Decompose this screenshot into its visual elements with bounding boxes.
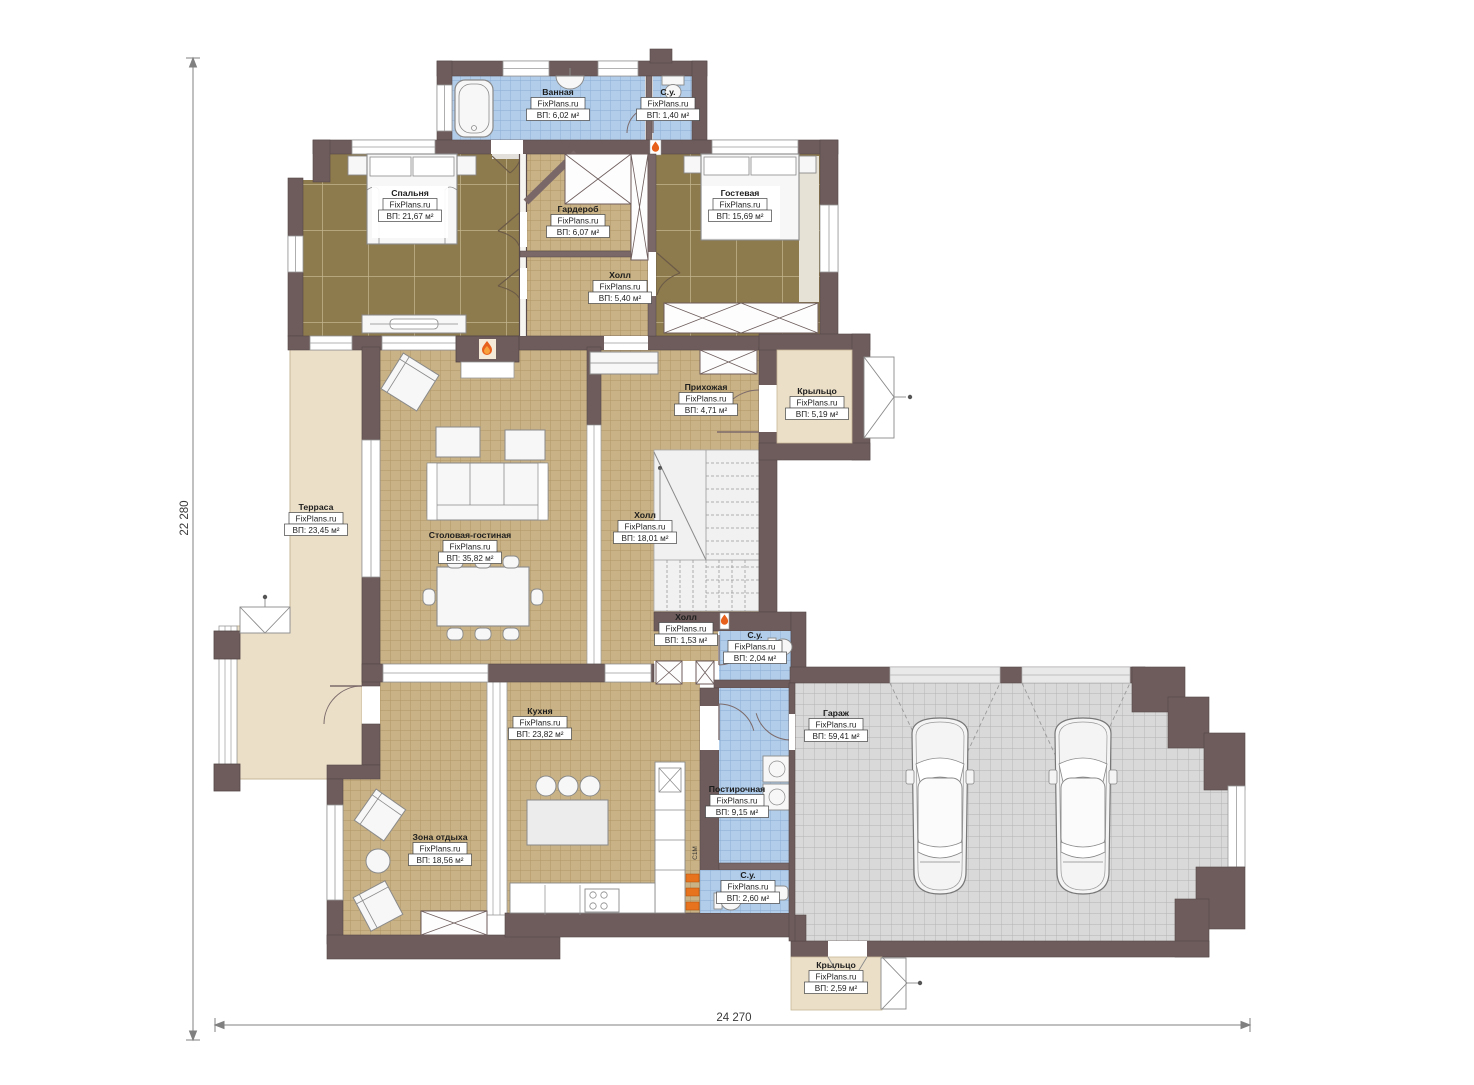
svg-text:24 270: 24 270: [716, 1012, 751, 1024]
svg-text:Постирочная: Постирочная: [709, 784, 765, 794]
svg-text:ВП: 4,71 м²: ВП: 4,71 м²: [685, 406, 728, 415]
svg-text:FixPlans.ru: FixPlans.ru: [797, 399, 838, 408]
svg-text:Холл: Холл: [675, 612, 697, 622]
svg-text:С1М: С1М: [692, 846, 699, 860]
svg-text:С.у.: С.у.: [660, 87, 675, 97]
svg-text:FixPlans.ru: FixPlans.ru: [728, 883, 769, 892]
svg-text:ВП: 15,69 м²: ВП: 15,69 м²: [716, 212, 763, 221]
svg-text:Крыльцо: Крыльцо: [797, 386, 837, 396]
svg-text:ВП: 35,82 м²: ВП: 35,82 м²: [446, 554, 493, 563]
svg-text:FixPlans.ru: FixPlans.ru: [520, 719, 561, 728]
svg-text:ВП: 5,40 м²: ВП: 5,40 м²: [599, 294, 642, 303]
svg-text:Крыльцо: Крыльцо: [816, 960, 856, 970]
svg-text:Холл: Холл: [609, 270, 631, 280]
svg-text:ВП: 2,59 м²: ВП: 2,59 м²: [815, 984, 858, 993]
svg-text:FixPlans.ru: FixPlans.ru: [717, 797, 758, 806]
svg-text:FixPlans.ru: FixPlans.ru: [816, 973, 857, 982]
svg-text:Ванная: Ванная: [542, 87, 574, 97]
svg-text:Гараж: Гараж: [823, 708, 850, 718]
svg-text:Кухня: Кухня: [527, 706, 552, 716]
svg-text:Зона отдыха: Зона отдыха: [412, 832, 467, 842]
svg-text:ВП: 23,82 м²: ВП: 23,82 м²: [516, 730, 563, 739]
svg-text:FixPlans.ru: FixPlans.ru: [600, 283, 641, 292]
svg-text:ВП: 21,67 м²: ВП: 21,67 м²: [386, 212, 433, 221]
svg-text:FixPlans.ru: FixPlans.ru: [720, 201, 761, 210]
svg-text:С.у.: С.у.: [740, 870, 755, 880]
svg-text:ВП: 9,15 м²: ВП: 9,15 м²: [716, 808, 759, 817]
svg-text:Гардероб: Гардероб: [557, 204, 599, 214]
svg-text:ВП: 1,40 м²: ВП: 1,40 м²: [647, 111, 690, 120]
svg-text:Гостевая: Гостевая: [721, 188, 760, 198]
svg-text:FixPlans.ru: FixPlans.ru: [686, 395, 727, 404]
svg-text:FixPlans.ru: FixPlans.ru: [735, 643, 776, 652]
svg-text:Холл: Холл: [634, 510, 656, 520]
svg-text:FixPlans.ru: FixPlans.ru: [420, 845, 461, 854]
svg-text:FixPlans.ru: FixPlans.ru: [625, 523, 666, 532]
svg-text:ВП: 1,53 м²: ВП: 1,53 м²: [665, 636, 708, 645]
svg-text:Столовая-гостиная: Столовая-гостиная: [429, 530, 512, 540]
svg-text:ВП: 59,41 м²: ВП: 59,41 м²: [812, 732, 859, 741]
svg-text:Спальня: Спальня: [391, 188, 429, 198]
svg-text:FixPlans.ru: FixPlans.ru: [538, 100, 579, 109]
svg-text:FixPlans.ru: FixPlans.ru: [558, 217, 599, 226]
svg-text:Терраса: Терраса: [299, 502, 334, 512]
svg-text:ВП: 5,19 м²: ВП: 5,19 м²: [796, 410, 839, 419]
svg-text:ВП: 2,04 м²: ВП: 2,04 м²: [734, 654, 777, 663]
svg-text:ВП: 18,01 м²: ВП: 18,01 м²: [621, 534, 668, 543]
svg-text:FixPlans.ru: FixPlans.ru: [816, 721, 857, 730]
svg-text:FixPlans.ru: FixPlans.ru: [390, 201, 431, 210]
svg-text:С.у.: С.у.: [747, 630, 762, 640]
svg-text:FixPlans.ru: FixPlans.ru: [450, 543, 491, 552]
svg-text:ВП: 23,45 м²: ВП: 23,45 м²: [292, 526, 339, 535]
svg-text:ВП: 6,02 м²: ВП: 6,02 м²: [537, 111, 580, 120]
svg-text:ВП: 6,07 м²: ВП: 6,07 м²: [557, 228, 600, 237]
svg-text:FixPlans.ru: FixPlans.ru: [296, 515, 337, 524]
svg-text:Прихожая: Прихожая: [685, 382, 728, 392]
svg-text:FixPlans.ru: FixPlans.ru: [666, 625, 707, 634]
svg-text:22 280: 22 280: [179, 500, 191, 535]
svg-text:ВП: 18,56 м²: ВП: 18,56 м²: [416, 856, 463, 865]
svg-text:FixPlans.ru: FixPlans.ru: [648, 100, 689, 109]
svg-text:ВП: 2,60 м²: ВП: 2,60 м²: [727, 894, 770, 903]
